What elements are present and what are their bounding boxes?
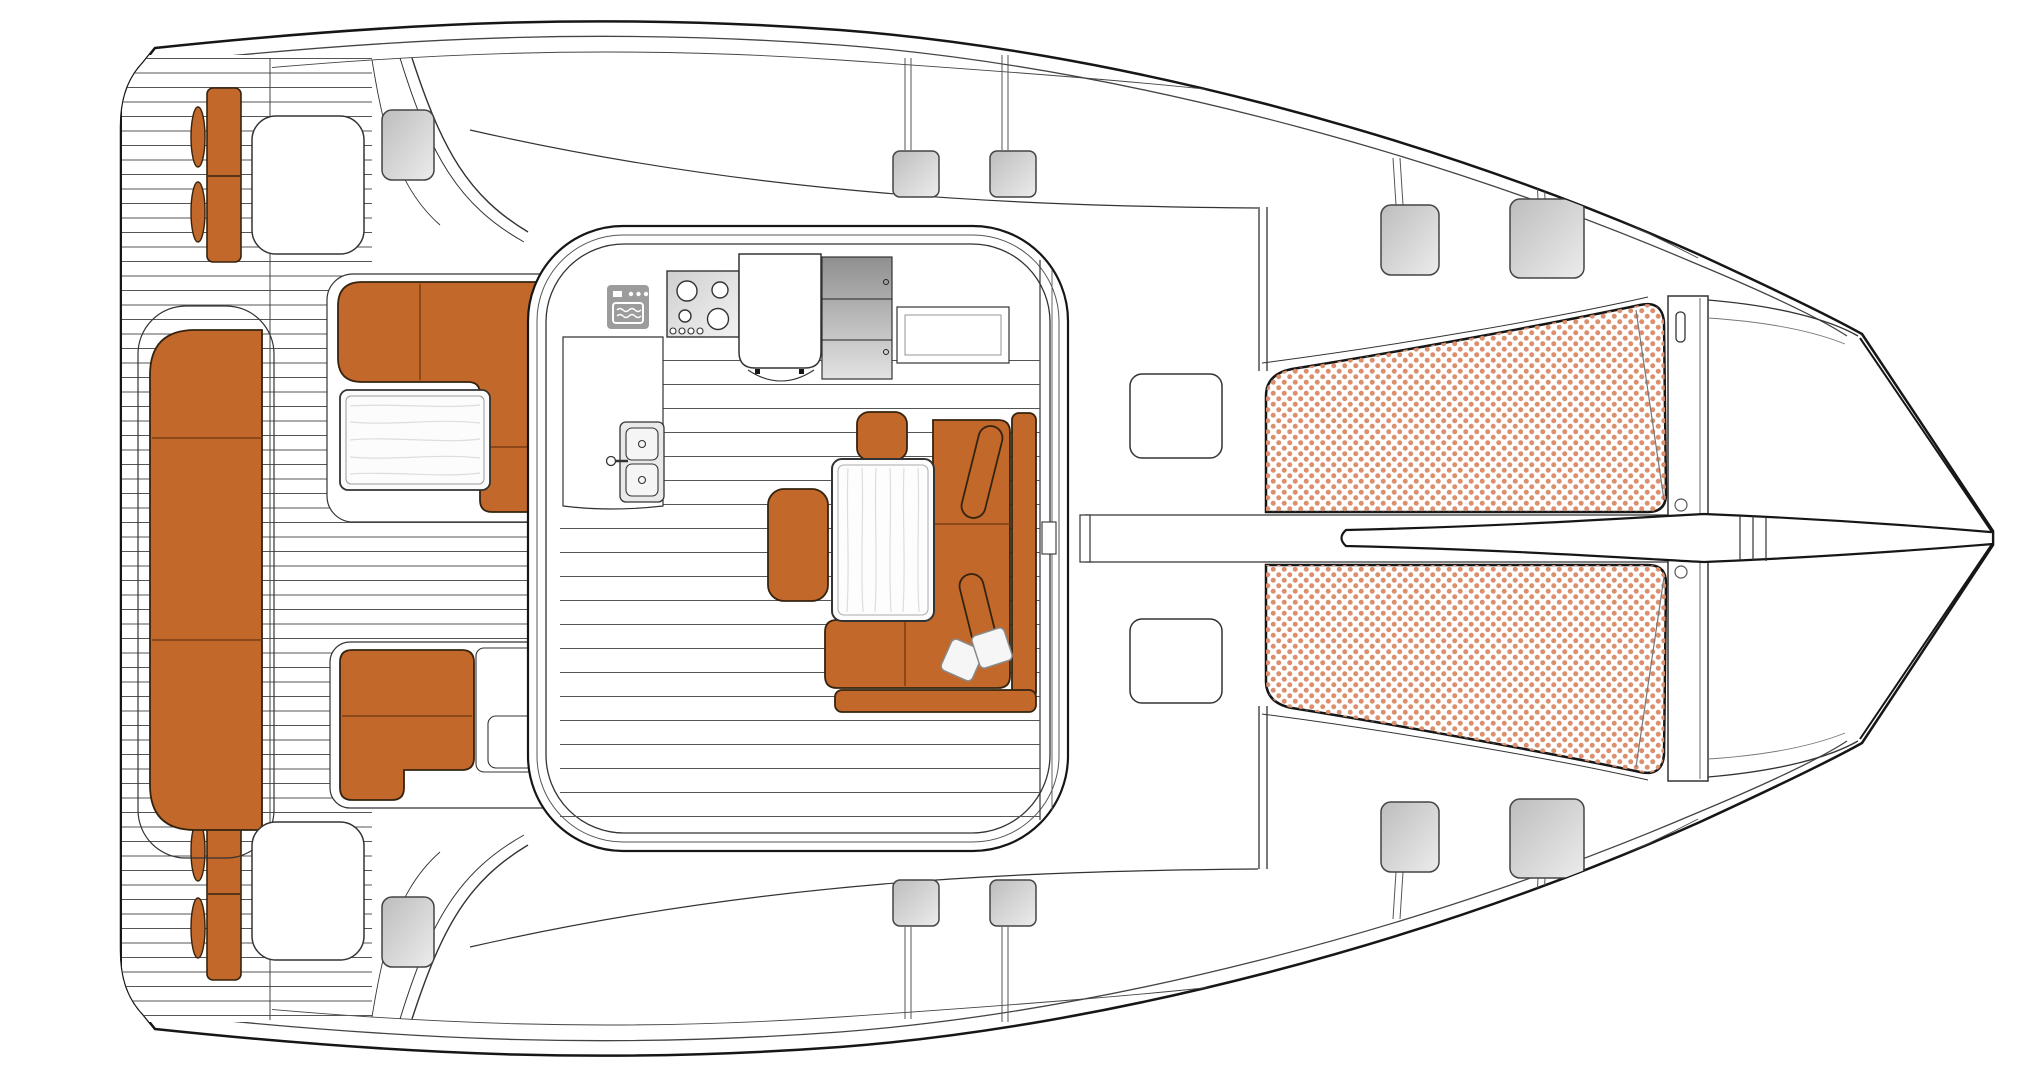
foredeck-locker <box>1130 619 1222 703</box>
aft-lounge-bench <box>138 306 274 858</box>
deck-hatch <box>382 110 434 180</box>
deck-hatch <box>1381 205 1439 275</box>
sofa-backrest-bottom <box>835 690 1036 712</box>
deck-hatch <box>1381 802 1439 872</box>
helm-seat-top <box>252 116 364 254</box>
galley-cabinet <box>822 257 892 379</box>
burner <box>677 281 697 301</box>
lounge-bench-cushion <box>150 330 262 830</box>
foredeck-locker <box>1130 374 1222 458</box>
galley-sideboard <box>897 307 1009 363</box>
cockpit-coffee-table <box>340 390 490 490</box>
dinette-stool-top <box>857 412 907 460</box>
burner <box>679 310 691 322</box>
beam-slot <box>1676 312 1685 342</box>
deck-plan-drawing <box>0 0 2040 1077</box>
stove-icon <box>667 271 739 337</box>
deck-hatch <box>893 880 939 926</box>
fender-cushion <box>191 107 205 167</box>
burner <box>712 282 728 298</box>
deck-plan-figure: Catamaran deck and cockpit layout plan <box>0 0 2040 1077</box>
burner <box>708 309 729 330</box>
dinette-table <box>832 459 934 621</box>
faucet <box>607 457 616 466</box>
deck-hatch <box>1510 799 1584 878</box>
fender-cushion <box>191 182 205 242</box>
oven-icon <box>607 285 649 329</box>
fender-cushion <box>191 898 205 958</box>
deck-hatch <box>1510 199 1584 278</box>
front-door-latch <box>1042 522 1056 554</box>
deck-hatch <box>990 151 1036 197</box>
sofa-backrest-right <box>1012 413 1036 699</box>
stern-bench-top <box>207 88 241 262</box>
dinette-stool-left <box>768 489 828 601</box>
helm-seat-bottom <box>252 822 364 960</box>
fridge-unit <box>739 254 821 381</box>
deck-hatch <box>990 880 1036 926</box>
deck-hatch <box>382 897 434 967</box>
deck-hatch <box>893 151 939 197</box>
